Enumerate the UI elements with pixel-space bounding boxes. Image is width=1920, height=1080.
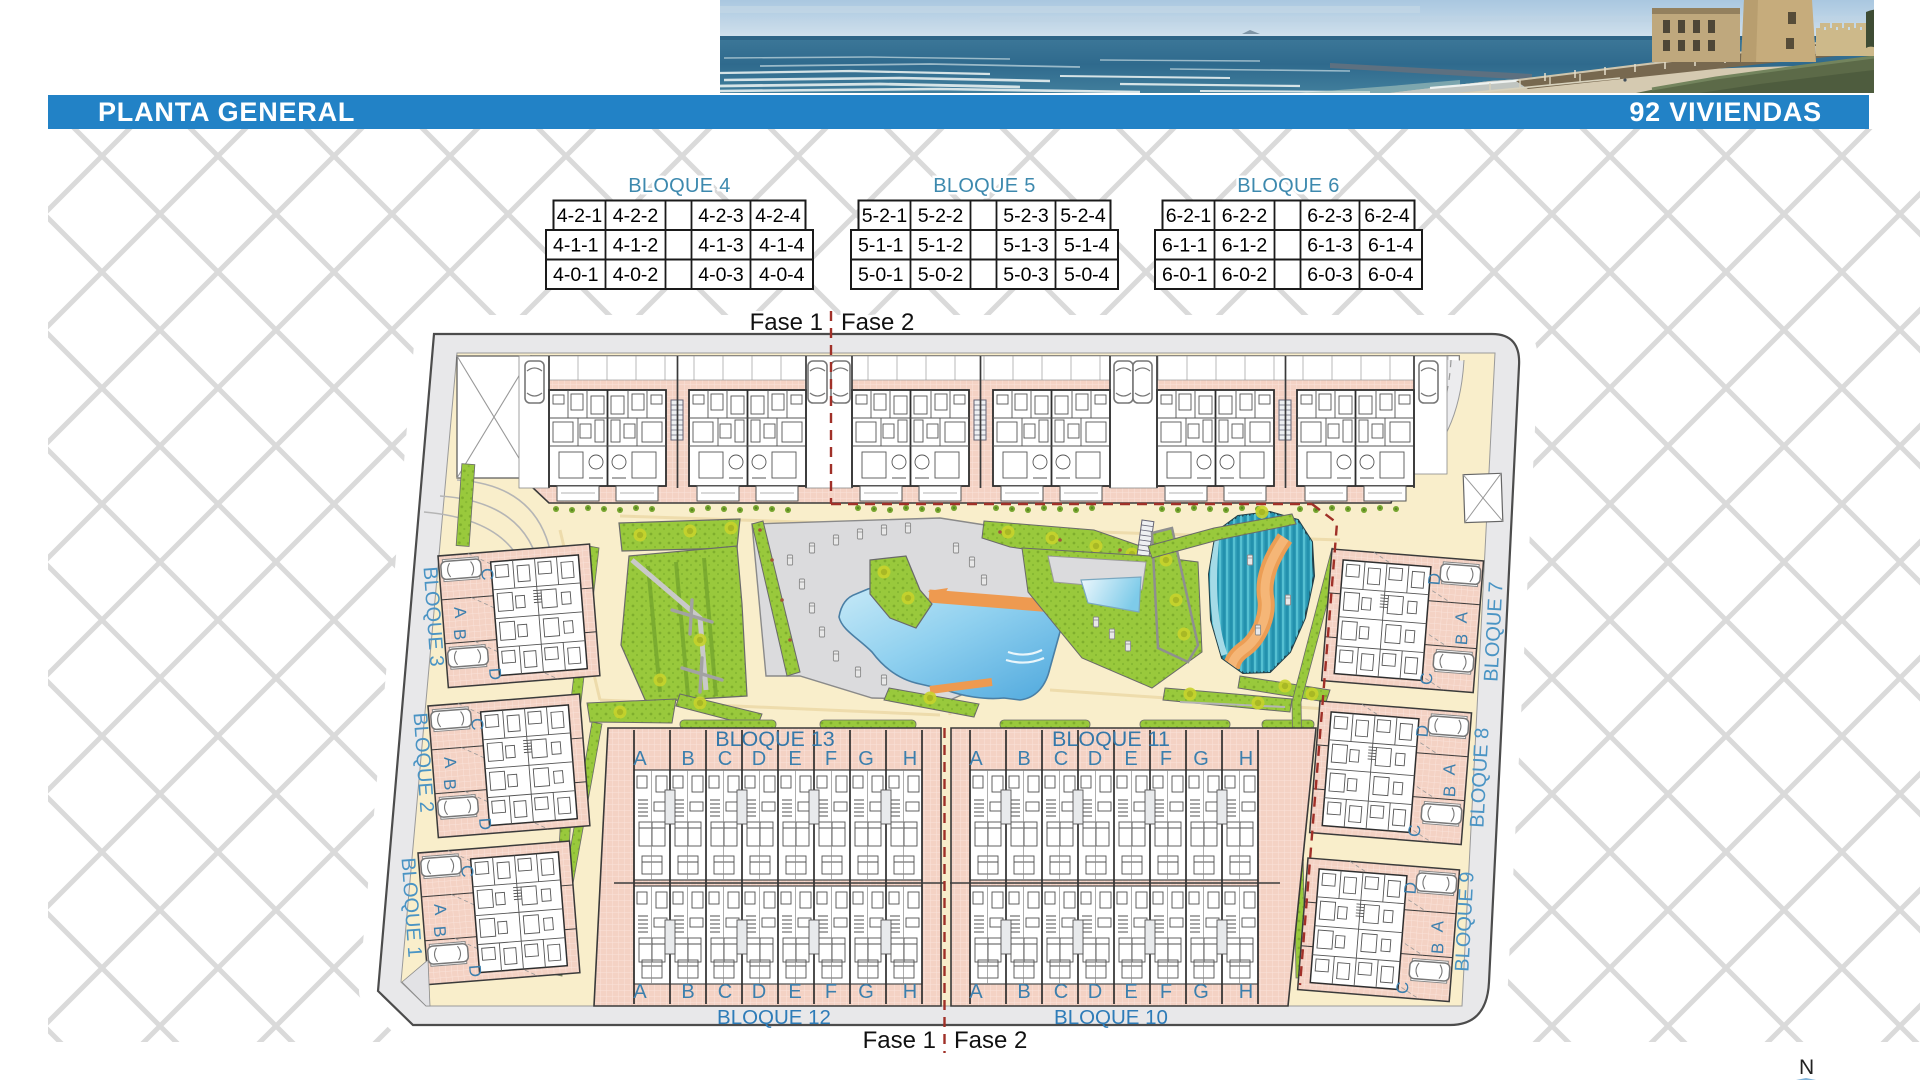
svg-text:A: A [1452, 610, 1472, 623]
svg-text:D: D [475, 817, 495, 831]
svg-text:N: N [1799, 1056, 1814, 1079]
svg-text:6-0-1: 6-0-1 [1162, 264, 1208, 286]
svg-text:6-2-4: 6-2-4 [1364, 205, 1410, 227]
svg-text:B: B [1017, 748, 1030, 770]
svg-text:4-2-4: 4-2-4 [755, 205, 801, 227]
svg-text:B: B [1017, 981, 1030, 1003]
svg-text:A: A [430, 903, 450, 916]
svg-text:C: C [718, 981, 732, 1003]
svg-text:G: G [1193, 748, 1209, 770]
svg-text:D: D [752, 748, 766, 770]
svg-text:6-2-1: 6-2-1 [1166, 205, 1212, 227]
svg-text:5-0-1: 5-0-1 [858, 264, 904, 286]
svg-text:6-0-4: 6-0-4 [1368, 264, 1414, 286]
svg-text:A: A [633, 981, 647, 1003]
svg-text:4-1-2: 4-1-2 [613, 235, 659, 257]
svg-text:4-0-1: 4-0-1 [553, 264, 599, 286]
svg-text:92 VIVIENDAS: 92 VIVIENDAS [1629, 97, 1822, 127]
svg-text:6-1-3: 6-1-3 [1307, 235, 1353, 257]
svg-text:F: F [825, 748, 837, 770]
svg-text:E: E [1124, 748, 1137, 770]
svg-text:B: B [450, 628, 470, 641]
svg-text:C: C [477, 567, 497, 581]
svg-text:5-0-2: 5-0-2 [918, 264, 964, 286]
svg-text:BLOQUE 10: BLOQUE 10 [1054, 1006, 1168, 1029]
svg-text:B: B [1440, 785, 1460, 798]
svg-text:BLOQUE 6: BLOQUE 6 [1237, 175, 1339, 197]
svg-text:6-1-2: 6-1-2 [1222, 235, 1268, 257]
svg-text:C: C [467, 717, 487, 731]
svg-text:5-2-3: 5-2-3 [1003, 205, 1049, 227]
svg-text:F: F [1160, 748, 1172, 770]
svg-text:6-0-3: 6-0-3 [1307, 264, 1353, 286]
svg-text:C: C [1405, 824, 1425, 838]
svg-text:H: H [1239, 981, 1253, 1003]
svg-text:H: H [903, 748, 917, 770]
svg-text:BLOQUE 4: BLOQUE 4 [628, 175, 730, 197]
svg-text:5-1-2: 5-1-2 [918, 235, 964, 257]
svg-text:B: B [440, 778, 460, 791]
svg-text:4-2-3: 4-2-3 [698, 205, 744, 227]
svg-text:4-1-3: 4-1-3 [698, 235, 744, 257]
svg-text:H: H [1239, 748, 1253, 770]
svg-text:C: C [1054, 748, 1068, 770]
svg-text:6-2-3: 6-2-3 [1307, 205, 1353, 227]
svg-text:BLOQUE 12: BLOQUE 12 [717, 1006, 831, 1029]
svg-text:5-2-1: 5-2-1 [862, 205, 908, 227]
svg-text:Fase 1: Fase 1 [750, 309, 823, 336]
svg-text:C: C [457, 864, 477, 878]
svg-text:A: A [633, 748, 647, 770]
svg-text:6-2-2: 6-2-2 [1222, 205, 1268, 227]
svg-text:6-1-4: 6-1-4 [1368, 235, 1414, 257]
svg-text:G: G [1193, 981, 1209, 1003]
svg-text:6-1-1: 6-1-1 [1162, 235, 1208, 257]
svg-text:C: C [1417, 672, 1437, 686]
svg-text:5-1-3: 5-1-3 [1003, 235, 1049, 257]
svg-text:A: A [1440, 762, 1460, 775]
svg-text:Fase 1: Fase 1 [863, 1027, 936, 1054]
svg-text:5-1-1: 5-1-1 [858, 235, 904, 257]
svg-text:E: E [788, 981, 801, 1003]
svg-text:A: A [969, 748, 983, 770]
svg-text:D: D [1088, 748, 1102, 770]
svg-text:C: C [1054, 981, 1068, 1003]
svg-text:4-1-4: 4-1-4 [759, 235, 805, 257]
svg-text:F: F [1160, 981, 1172, 1003]
svg-text:F: F [825, 981, 837, 1003]
svg-text:C: C [1393, 981, 1413, 995]
svg-text:4-1-1: 4-1-1 [553, 235, 599, 257]
svg-text:B: B [430, 925, 450, 938]
svg-text:4-2-2: 4-2-2 [613, 205, 659, 227]
svg-text:G: G [858, 981, 874, 1003]
svg-text:Fase 2: Fase 2 [954, 1027, 1027, 1054]
svg-text:D: D [1424, 572, 1444, 586]
svg-text:D: D [1088, 981, 1102, 1003]
svg-text:A: A [440, 756, 460, 769]
svg-text:D: D [752, 981, 766, 1003]
svg-text:4-0-4: 4-0-4 [759, 264, 805, 286]
svg-text:4-0-2: 4-0-2 [613, 264, 659, 286]
svg-text:5-0-3: 5-0-3 [1003, 264, 1049, 286]
svg-text:B: B [681, 981, 694, 1003]
svg-text:BLOQUE 5: BLOQUE 5 [933, 175, 1035, 197]
svg-text:A: A [1428, 919, 1448, 932]
svg-text:D: D [465, 964, 485, 978]
svg-text:PLANTA GENERAL: PLANTA GENERAL [98, 97, 355, 127]
svg-text:B: B [1452, 633, 1472, 646]
svg-text:A: A [450, 606, 470, 619]
svg-text:6-0-2: 6-0-2 [1222, 264, 1268, 286]
svg-text:A: A [969, 981, 983, 1003]
svg-text:5-0-4: 5-0-4 [1064, 264, 1110, 286]
svg-text:5-1-4: 5-1-4 [1064, 235, 1110, 257]
svg-text:5-2-2: 5-2-2 [918, 205, 964, 227]
svg-text:B: B [681, 748, 694, 770]
svg-text:BLOQUE 11: BLOQUE 11 [1052, 727, 1170, 751]
svg-text:E: E [788, 748, 801, 770]
svg-text:G: G [858, 748, 874, 770]
svg-text:BLOQUE 13: BLOQUE 13 [715, 727, 835, 751]
svg-text:4-2-1: 4-2-1 [557, 205, 603, 227]
svg-text:D: D [485, 667, 505, 681]
svg-text:Fase 2: Fase 2 [841, 309, 914, 336]
svg-text:C: C [718, 748, 732, 770]
svg-text:5-2-4: 5-2-4 [1060, 205, 1106, 227]
svg-text:D: D [1412, 724, 1432, 738]
svg-text:4-0-3: 4-0-3 [698, 264, 744, 286]
svg-text:B: B [1428, 942, 1448, 955]
svg-text:H: H [903, 981, 917, 1003]
svg-text:D: D [1400, 881, 1420, 895]
svg-text:E: E [1124, 981, 1137, 1003]
